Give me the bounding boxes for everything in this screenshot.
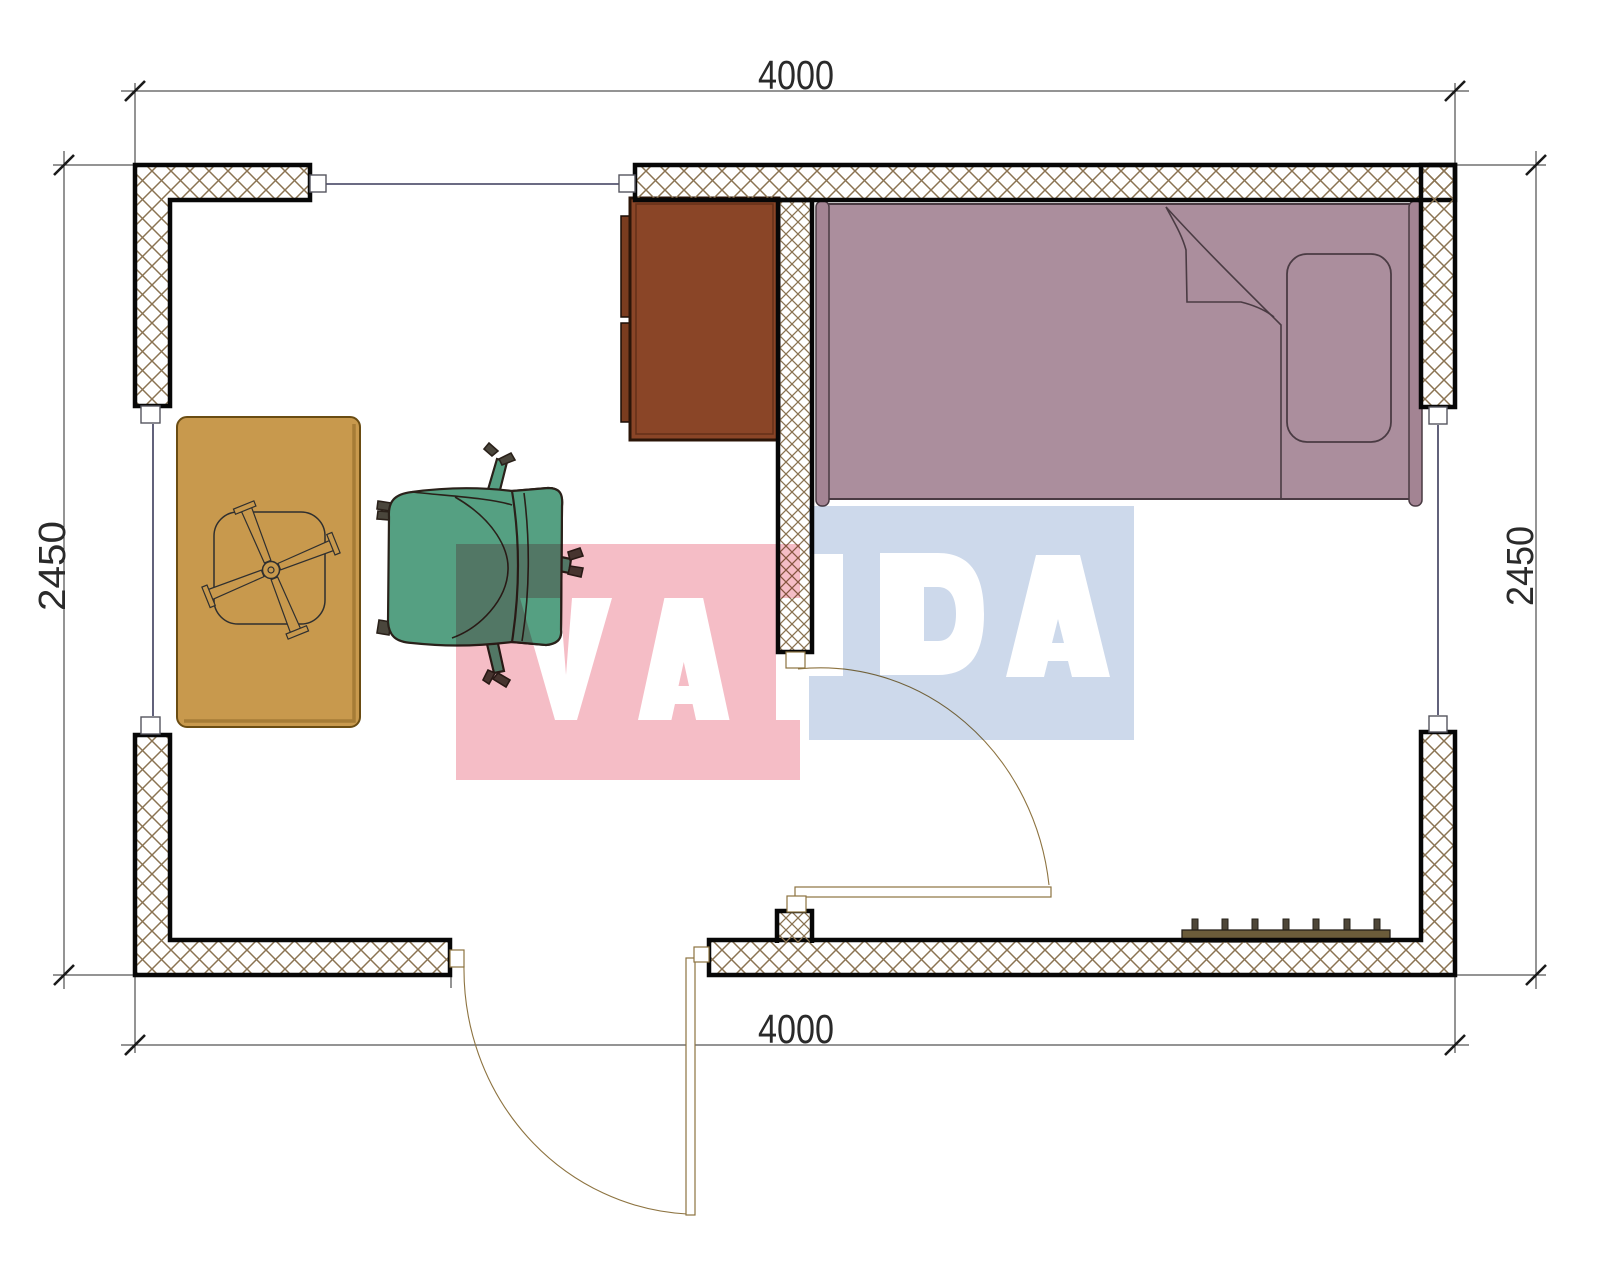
svg-text:4000: 4000 xyxy=(758,52,834,98)
svg-text:2450: 2450 xyxy=(1500,526,1542,606)
svg-text:4000: 4000 xyxy=(758,1006,834,1052)
svg-text:2450: 2450 xyxy=(32,521,74,611)
